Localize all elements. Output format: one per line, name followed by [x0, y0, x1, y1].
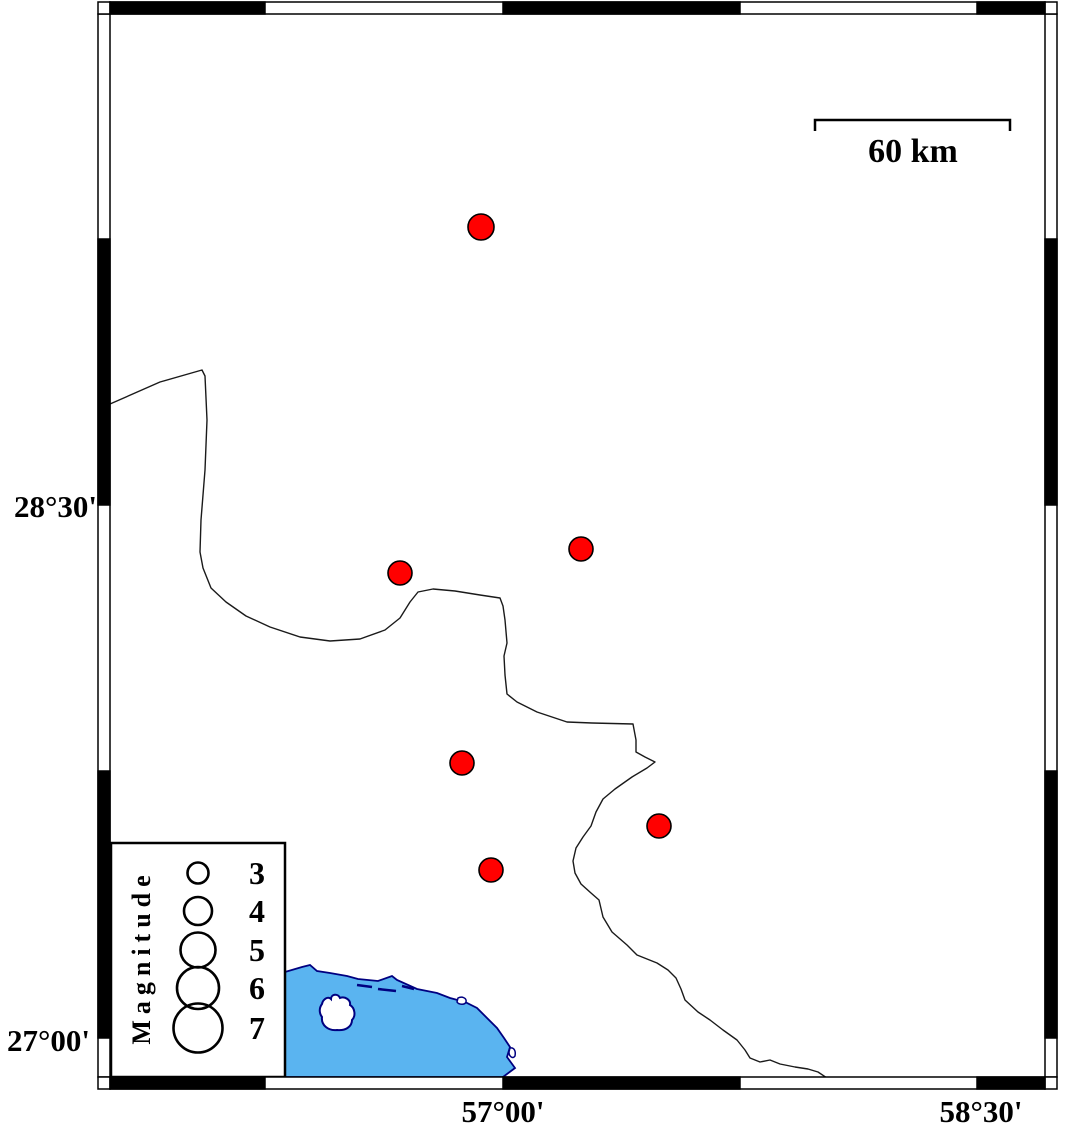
scale-bar-label: 60 km [868, 133, 958, 170]
frame-segment [1045, 771, 1057, 1038]
epicenter-point [388, 561, 412, 585]
frame-segment [110, 1077, 265, 1089]
legend-value-mag5: 5 [249, 932, 265, 968]
lat-label-28-30: 28°30' [14, 489, 97, 524]
epicenter-point [479, 858, 503, 882]
island [320, 995, 355, 1030]
frame-corner [98, 2, 110, 14]
frame-segment [503, 2, 740, 14]
frame-segment [1045, 239, 1057, 505]
map-canvas: 60 km Magnitude 3 4 5 6 7 [0, 0, 1066, 1128]
legend-value-mag6: 6 [249, 970, 265, 1006]
epicenter-point [569, 537, 593, 561]
frame-corner [1045, 1077, 1057, 1089]
frame-corner [1045, 2, 1057, 14]
epicenter-point [450, 751, 474, 775]
lon-label-57-00: 57°00' [461, 1094, 544, 1128]
islet [509, 1048, 515, 1058]
lat-label-27-00: 27°00' [7, 1023, 90, 1058]
frame-segment [503, 1077, 740, 1089]
frame-segment [98, 771, 110, 1038]
islet [457, 997, 466, 1004]
frame-segment [977, 1077, 1045, 1089]
lon-label-58-30: 58°30' [939, 1094, 1022, 1128]
legend-value-mag7: 7 [249, 1010, 265, 1046]
epicenter-point [647, 814, 671, 838]
legend-value-mag4: 4 [249, 893, 265, 929]
legend-value-mag3: 3 [249, 855, 265, 891]
seismicity-map: 60 km Magnitude 3 4 5 6 7 [0, 0, 1066, 1128]
frame-segment [110, 2, 265, 14]
legend-title: Magnitude [127, 869, 156, 1044]
frame-corner [98, 1077, 110, 1089]
frame-segment [98, 239, 110, 505]
magnitude-legend: Magnitude 3 4 5 6 7 [111, 843, 285, 1077]
frame-segment [977, 2, 1045, 14]
epicenter-point [468, 214, 494, 240]
